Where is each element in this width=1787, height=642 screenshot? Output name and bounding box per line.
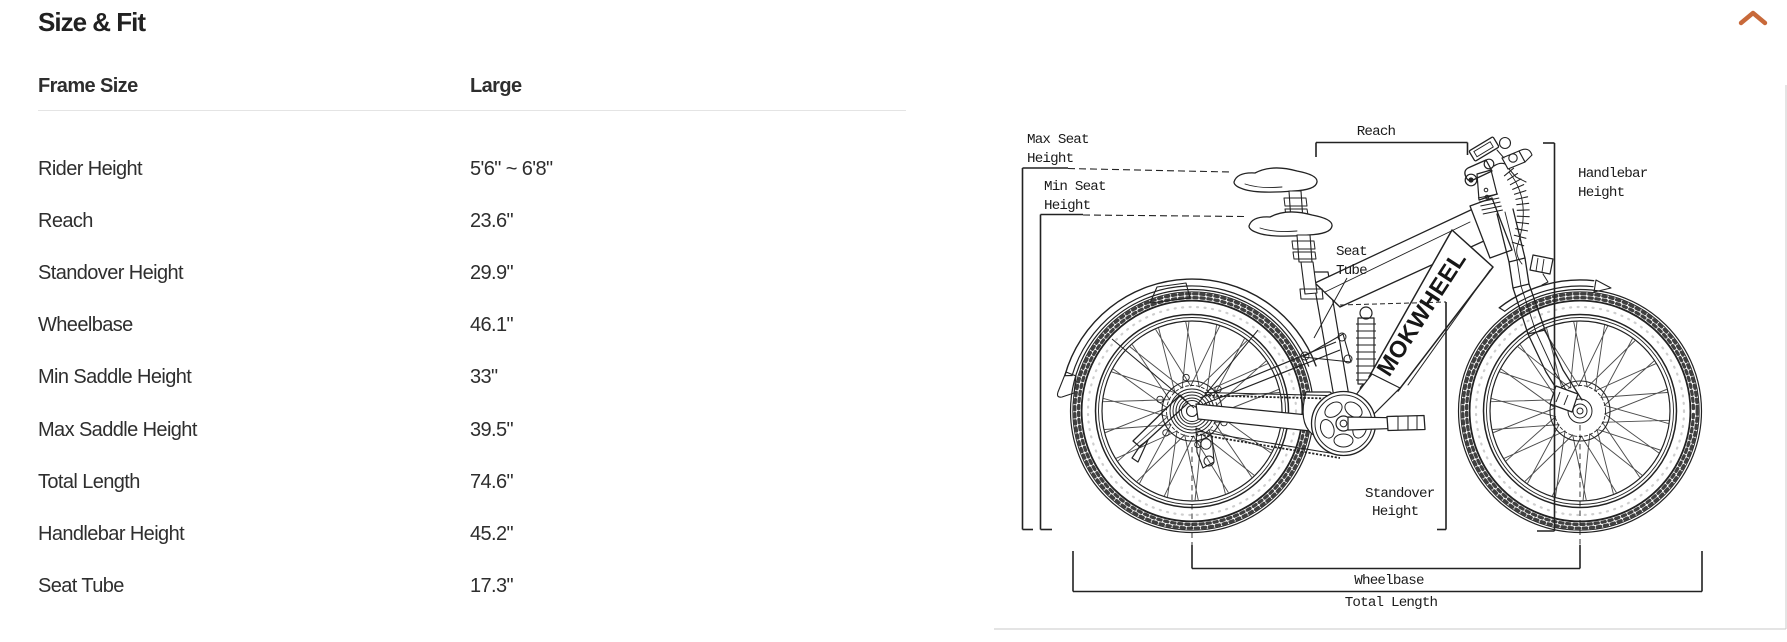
svg-text:Height: Height	[1027, 151, 1074, 167]
svg-text:Height: Height	[1044, 198, 1091, 214]
svg-text:Wheelbase: Wheelbase	[1354, 573, 1424, 589]
svg-text:Handlebar: Handlebar	[1578, 166, 1648, 182]
svg-text:Seat: Seat	[1336, 244, 1367, 260]
svg-text:Height: Height	[1578, 185, 1625, 201]
svg-text:Reach: Reach	[1357, 124, 1396, 140]
svg-text:Standover: Standover	[1365, 486, 1435, 502]
svg-text:Total Length: Total Length	[1345, 595, 1438, 611]
svg-text:Min Seat: Min Seat	[1044, 179, 1106, 195]
svg-text:Tube: Tube	[1336, 263, 1367, 279]
svg-text:Max Seat: Max Seat	[1027, 132, 1089, 148]
svg-text:Height: Height	[1372, 504, 1419, 520]
